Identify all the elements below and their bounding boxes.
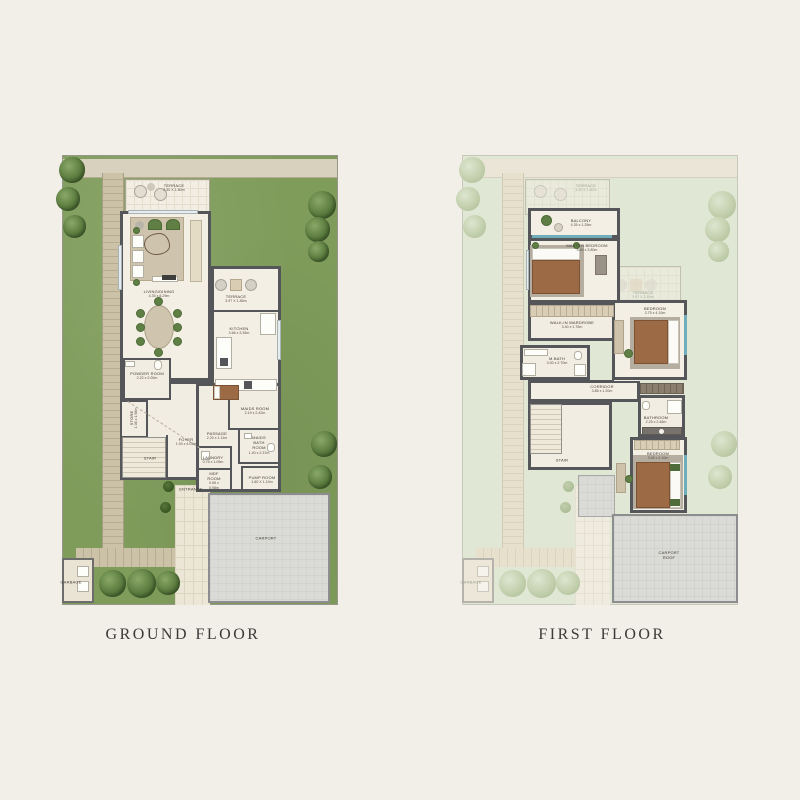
bathtub-icon: [667, 400, 682, 414]
entrance-walkway: [175, 485, 210, 605]
room-label-bedroom-1: BEDROOM3.75 x 4.10m: [633, 306, 677, 316]
tree-icon: [499, 570, 526, 597]
wardrobe-shelving: [634, 440, 680, 450]
cabinet: [190, 220, 202, 282]
dining-chair-icon: [154, 348, 163, 357]
armchair-icon: [148, 219, 162, 230]
plant-icon: [625, 475, 633, 483]
dining-chair-icon: [136, 309, 145, 318]
room-label-carport: CARPORT: [244, 535, 288, 540]
room-label-mbath: M.BATH3.00 x 2.70m: [535, 356, 579, 366]
room-label-corridor: CORRIDOR3.86 x 1.20m: [580, 384, 624, 394]
bathtub-icon: [522, 363, 536, 376]
wall: [228, 428, 281, 430]
cushion-icon: [670, 499, 680, 506]
tree-icon: [527, 569, 556, 598]
nightstand-icon: [532, 242, 539, 249]
tree-icon: [708, 191, 736, 219]
toilet-icon: [642, 401, 650, 410]
window: [532, 235, 612, 238]
tree-icon: [311, 431, 337, 457]
ground-floor-caption: GROUND FLOOR: [45, 626, 321, 644]
room-label-terrace-side-faded: TERRACE3.97 X 1.85m: [621, 290, 665, 300]
dining-chair-icon: [173, 309, 182, 318]
terrace-chair-icon: [245, 279, 257, 291]
garbage-bin-icon: [477, 566, 489, 577]
dining-chair-icon: [136, 323, 145, 332]
plant-icon: [133, 279, 140, 286]
first-floor-caption: FIRST FLOOR: [464, 626, 740, 644]
terrace-table-icon: [230, 279, 242, 291]
room-label-stair: STAIR: [128, 455, 172, 460]
tree-icon: [59, 157, 85, 183]
tv-icon: [162, 275, 176, 280]
window: [118, 245, 122, 290]
tree-icon: [708, 241, 729, 262]
tree-icon: [705, 217, 730, 242]
dining-chair-icon: [173, 323, 182, 332]
dining-chair-icon: [136, 337, 145, 346]
first-floor-plan: TERRACE4.30 X 1.80m TERRACE3.97 X 1.85m …: [462, 155, 738, 605]
room-label-balcony: BALCONY4.35 x 1.25m: [559, 218, 603, 228]
tree-icon: [127, 569, 156, 598]
bed-pillows: [668, 320, 679, 364]
room-label-store: STORE1.08 x 1.98m: [129, 400, 139, 436]
tree-icon: [308, 241, 329, 262]
room-label-laundry: LAUNDRY0.75 x 1.05m: [200, 455, 226, 465]
wall: [241, 466, 281, 468]
garbage-bin-icon: [77, 566, 89, 577]
room-label-terrace: TERRACE4.30 X 1.80m: [152, 183, 196, 193]
terrace-chair-icon: [215, 279, 227, 291]
room-label-living-dining: LIVING/DINING4.35 x 8.29m: [137, 289, 181, 299]
dresser-icon: [595, 255, 607, 275]
tree-icon: [463, 215, 486, 238]
room-label-terrace-faded: TERRACE4.30 X 1.80m: [564, 183, 608, 193]
tree-icon: [459, 157, 485, 183]
tree-icon: [56, 187, 80, 211]
wall: [238, 462, 281, 464]
room-label-maids-bath: MAIDS BATH ROOM1.40 x 2.37m: [247, 435, 271, 455]
room-label-carport-roof: CARPORT ROOF: [657, 550, 681, 560]
floorplan-sheet: { "captions": { "ground": "GROUND FLOOR"…: [0, 0, 800, 800]
room-label-bedroom-2: BEDROOM3.65 x 4.10m: [636, 451, 680, 461]
tree-icon: [456, 187, 480, 211]
sofa-module: [132, 250, 144, 263]
sofa-module: [132, 235, 144, 248]
dining-chair-icon: [173, 337, 182, 346]
bed-icon: [532, 260, 580, 294]
wardrobe-shelving: [640, 383, 684, 394]
window: [526, 250, 529, 290]
bed-icon: [636, 462, 670, 508]
room-label-pump: PUMP ROOM1.60 X 1.10m: [240, 475, 284, 485]
ground-floor-plan: TERRACE4.30 X 1.80m LIVING/DINING4.35 x …: [62, 155, 338, 605]
room-label-bathroom: BATHROOM2.25 x 2.46m: [639, 415, 673, 425]
cushion-icon: [670, 464, 680, 471]
room-label-terrace-side: TERRACE3.97 X 1.85m: [214, 294, 258, 304]
room-label-garbage: GARBAGE: [58, 579, 84, 584]
carport-area: [208, 493, 330, 603]
rug-pattern: [144, 233, 170, 255]
lounge-chair-icon: [134, 185, 147, 198]
window: [684, 315, 687, 355]
stove-icon: [220, 358, 228, 366]
tree-icon: [308, 191, 336, 219]
armchair-icon: [166, 219, 180, 230]
window: [684, 455, 687, 495]
tree-icon: [156, 571, 180, 595]
pillow-icon: [214, 386, 220, 399]
lounge-chair-icon: [534, 185, 547, 198]
wall: [211, 310, 281, 312]
wall: [230, 446, 232, 492]
sink-icon: [659, 429, 664, 434]
room-label-wardrobe: WALK-IN WARDROBE3.40 x 1.75m: [547, 320, 597, 330]
fridge-icon: [260, 313, 276, 335]
sink-icon: [125, 361, 135, 367]
plant-icon: [541, 215, 552, 226]
room-label-garbage-faded: GARBAGE: [458, 579, 484, 584]
shrub-icon: [160, 502, 171, 513]
wall: [238, 430, 240, 464]
tree-icon: [308, 465, 332, 489]
toilet-icon: [154, 360, 162, 370]
roof-ledge: [578, 475, 615, 517]
sink-icon: [244, 381, 252, 389]
tree-icon: [99, 570, 126, 597]
tree-icon: [556, 571, 580, 595]
sofa-module: [132, 265, 144, 278]
shrub-icon: [563, 481, 574, 492]
room-label-powder: POWDER ROOM2.22 x 2.00m: [125, 371, 169, 381]
plant-icon: [624, 349, 633, 358]
room-label-kitchen: KITCHEN3.66 x 3.35m: [217, 326, 261, 336]
stair-steps: [530, 404, 562, 454]
bed-icon: [634, 320, 668, 364]
tree-icon: [711, 431, 737, 457]
room-label-entrance: ENTRANCE: [169, 486, 213, 491]
wall: [196, 468, 232, 470]
dining-table-icon: [144, 305, 174, 349]
desk-icon: [614, 320, 624, 354]
vanity-icon: [524, 349, 548, 356]
room-label-maids-room: MAIDS ROOM2.19 x 2.42m: [233, 406, 277, 416]
window: [128, 210, 198, 214]
wardrobe-shelving: [530, 305, 614, 317]
room-label-master-bedroom: MASTER BEDROOM4.60 x 3.80m: [564, 243, 610, 253]
room-label-passage: PASSAGE2.20 x 1.11m: [202, 431, 232, 441]
tree-icon: [708, 465, 732, 489]
tree-icon: [63, 215, 86, 238]
window: [277, 320, 281, 360]
plant-icon: [133, 227, 140, 234]
room-label-stair: STAIR: [540, 457, 584, 462]
shrub-icon: [560, 502, 571, 513]
tree-icon: [305, 217, 330, 242]
